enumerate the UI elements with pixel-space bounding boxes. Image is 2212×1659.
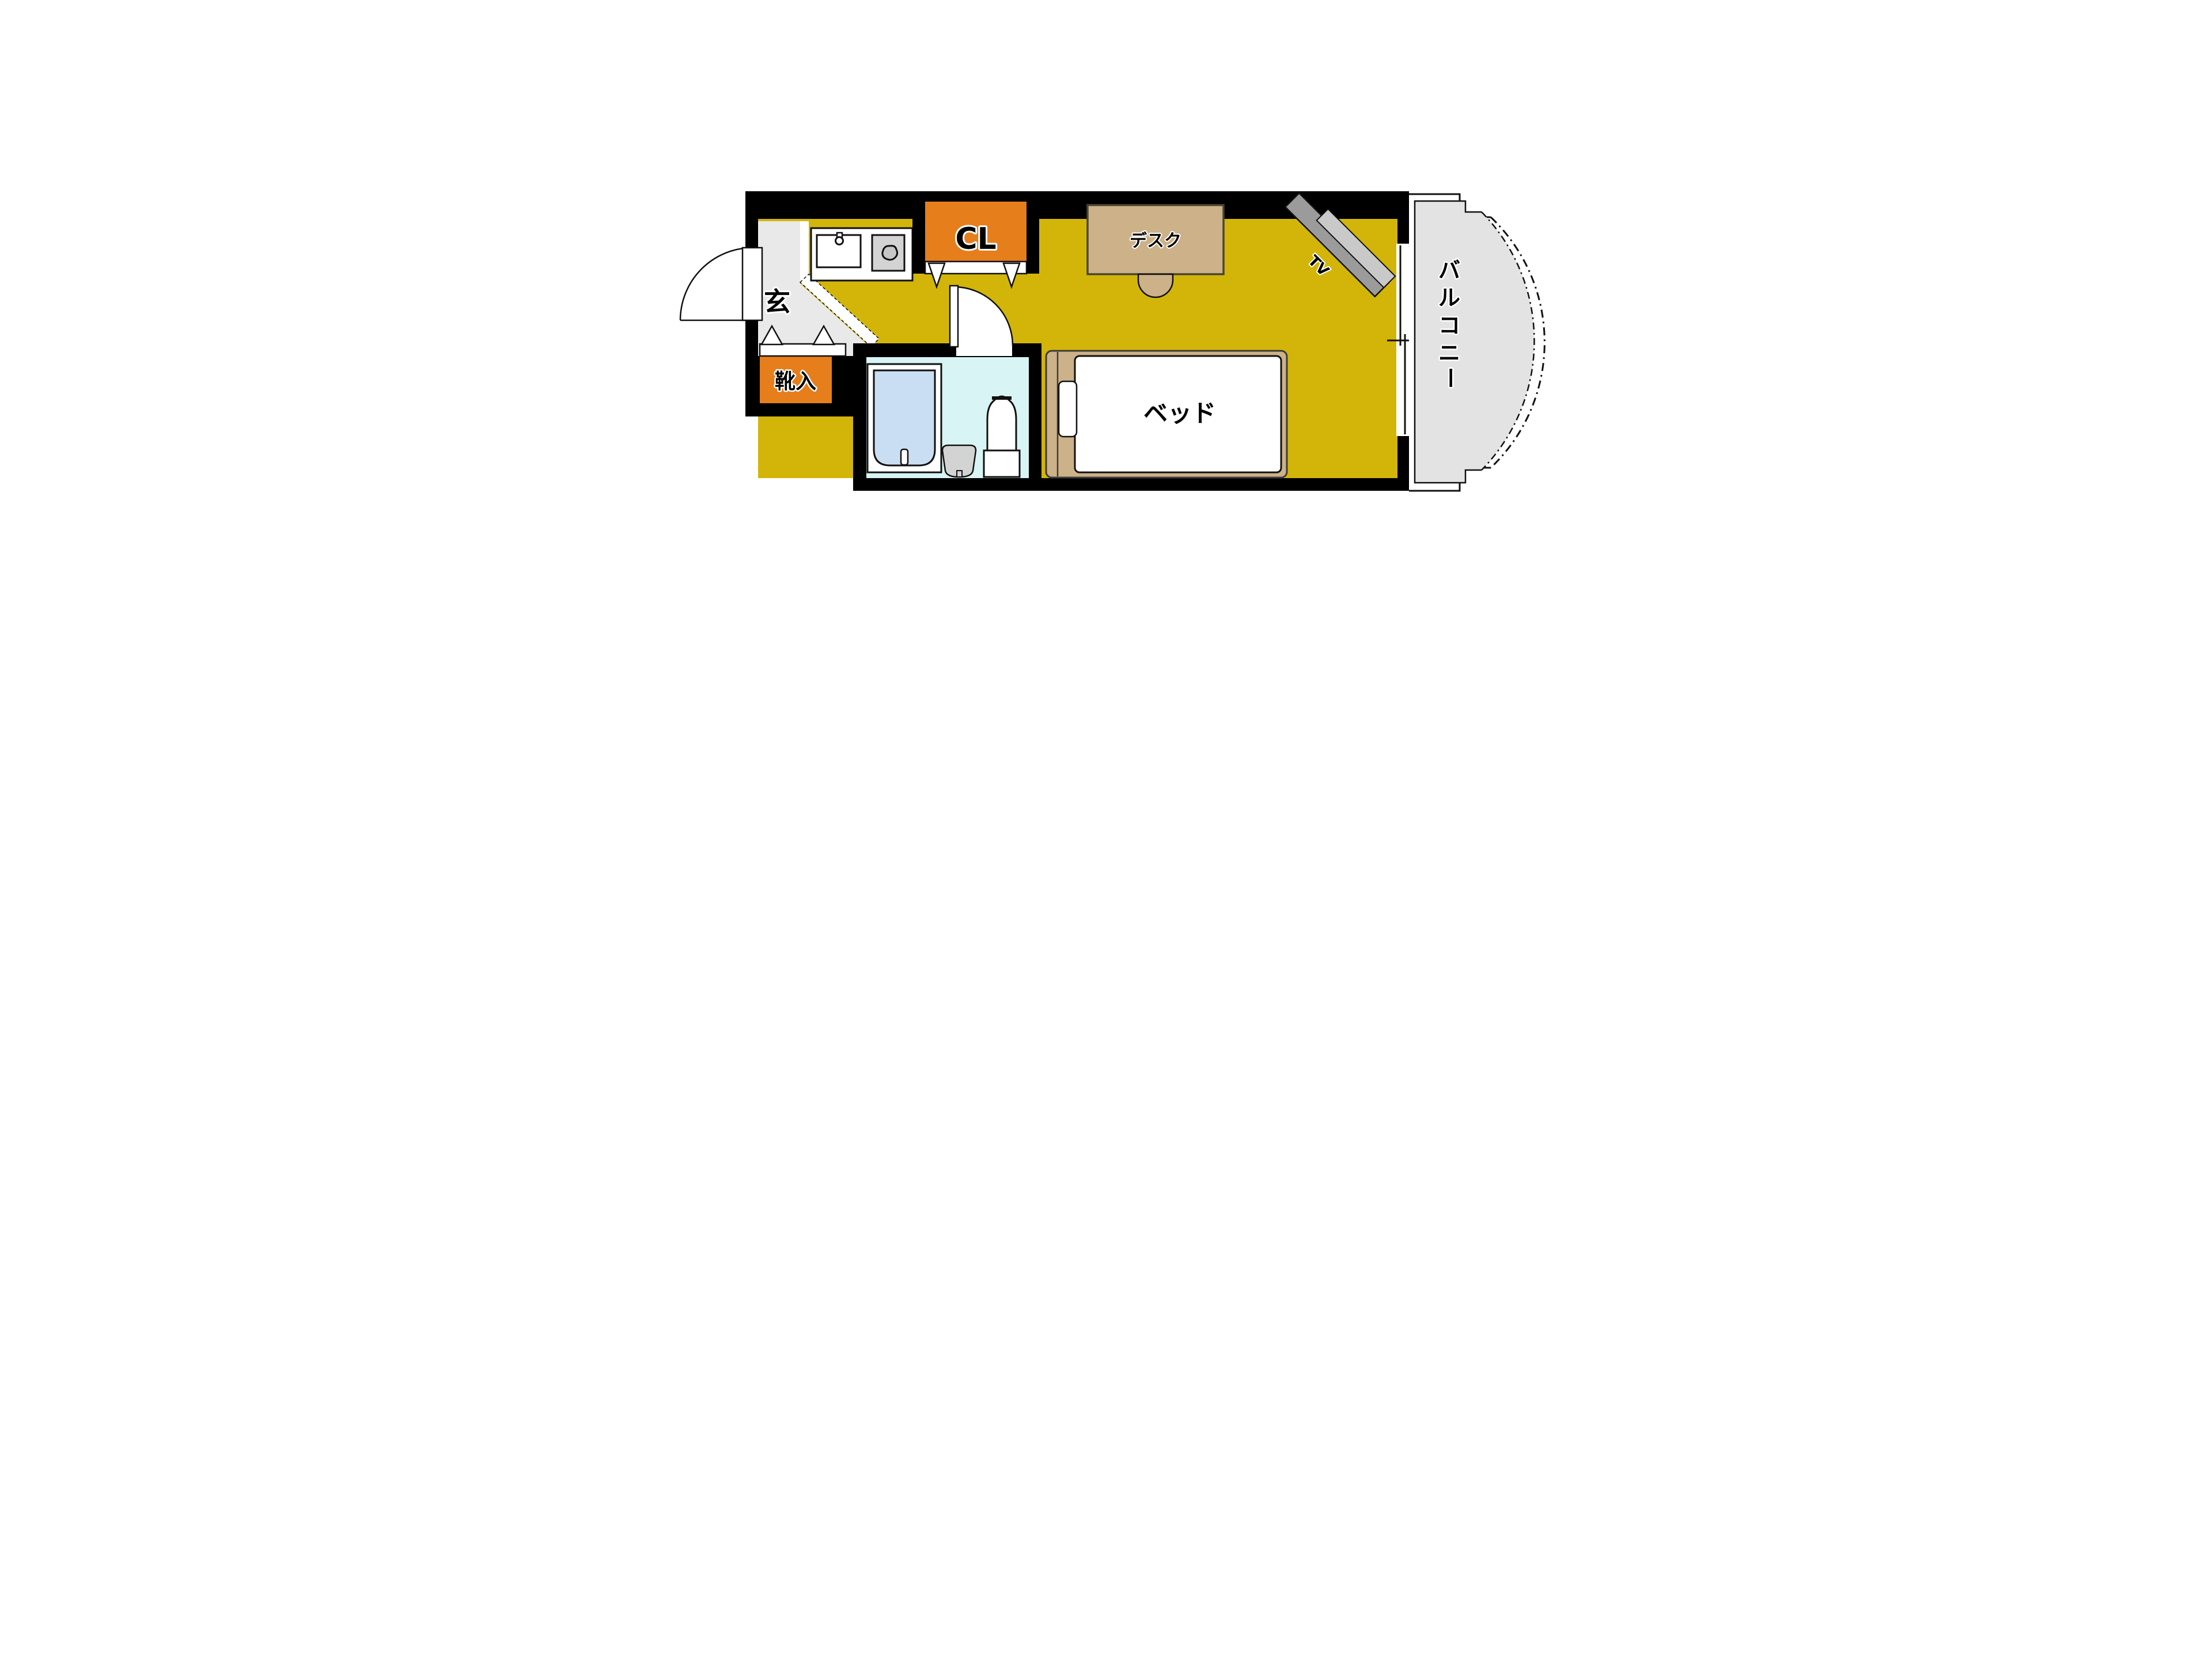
bathtub (868, 364, 941, 472)
bathroom-door-leaf (950, 286, 958, 347)
balcony-char: ー (1437, 367, 1463, 389)
balcony-char: ル (1438, 285, 1460, 310)
toilet (984, 396, 1020, 477)
desk-label: デスク (1130, 231, 1181, 251)
balcony: バ ル コ ニ ー (1409, 194, 1544, 491)
closet-label: CL (955, 222, 996, 256)
shoe-cabinet-folding-door (760, 344, 846, 356)
toilet-bowl (987, 396, 1016, 450)
balcony-char: バ (1438, 257, 1460, 283)
entrance-kitchen-divider (800, 221, 809, 282)
kitchen-counter (811, 228, 912, 281)
pot-icon (882, 246, 897, 260)
wash-basin (942, 445, 976, 477)
balcony-char: コ (1438, 313, 1460, 338)
bed-label: ベッド (1143, 399, 1216, 427)
balcony-floor (1415, 201, 1534, 483)
bathtub-drain-icon (901, 449, 908, 465)
bed-group: ベッド (1046, 351, 1287, 478)
entrance-label: 玄 (764, 286, 790, 317)
balcony-char: ニ (1438, 340, 1460, 366)
shoe-cabinet-label: 靴入 (775, 370, 816, 393)
entrance-door (680, 248, 762, 320)
entrance-door-leaf (743, 248, 762, 320)
balcony-label: バ ル コ ニ ー (1437, 257, 1463, 389)
bathroom-door-threshold (956, 344, 1012, 356)
toilet-tank (984, 450, 1020, 477)
floorplan-canvas: CL 靴入 玄 (654, 0, 1558, 677)
floorplan-page: CL 靴入 玄 (654, 0, 1558, 677)
bed-pillow (1059, 381, 1077, 437)
wash-basin-drain-icon (957, 471, 962, 477)
faucet-knob-icon (836, 237, 843, 245)
